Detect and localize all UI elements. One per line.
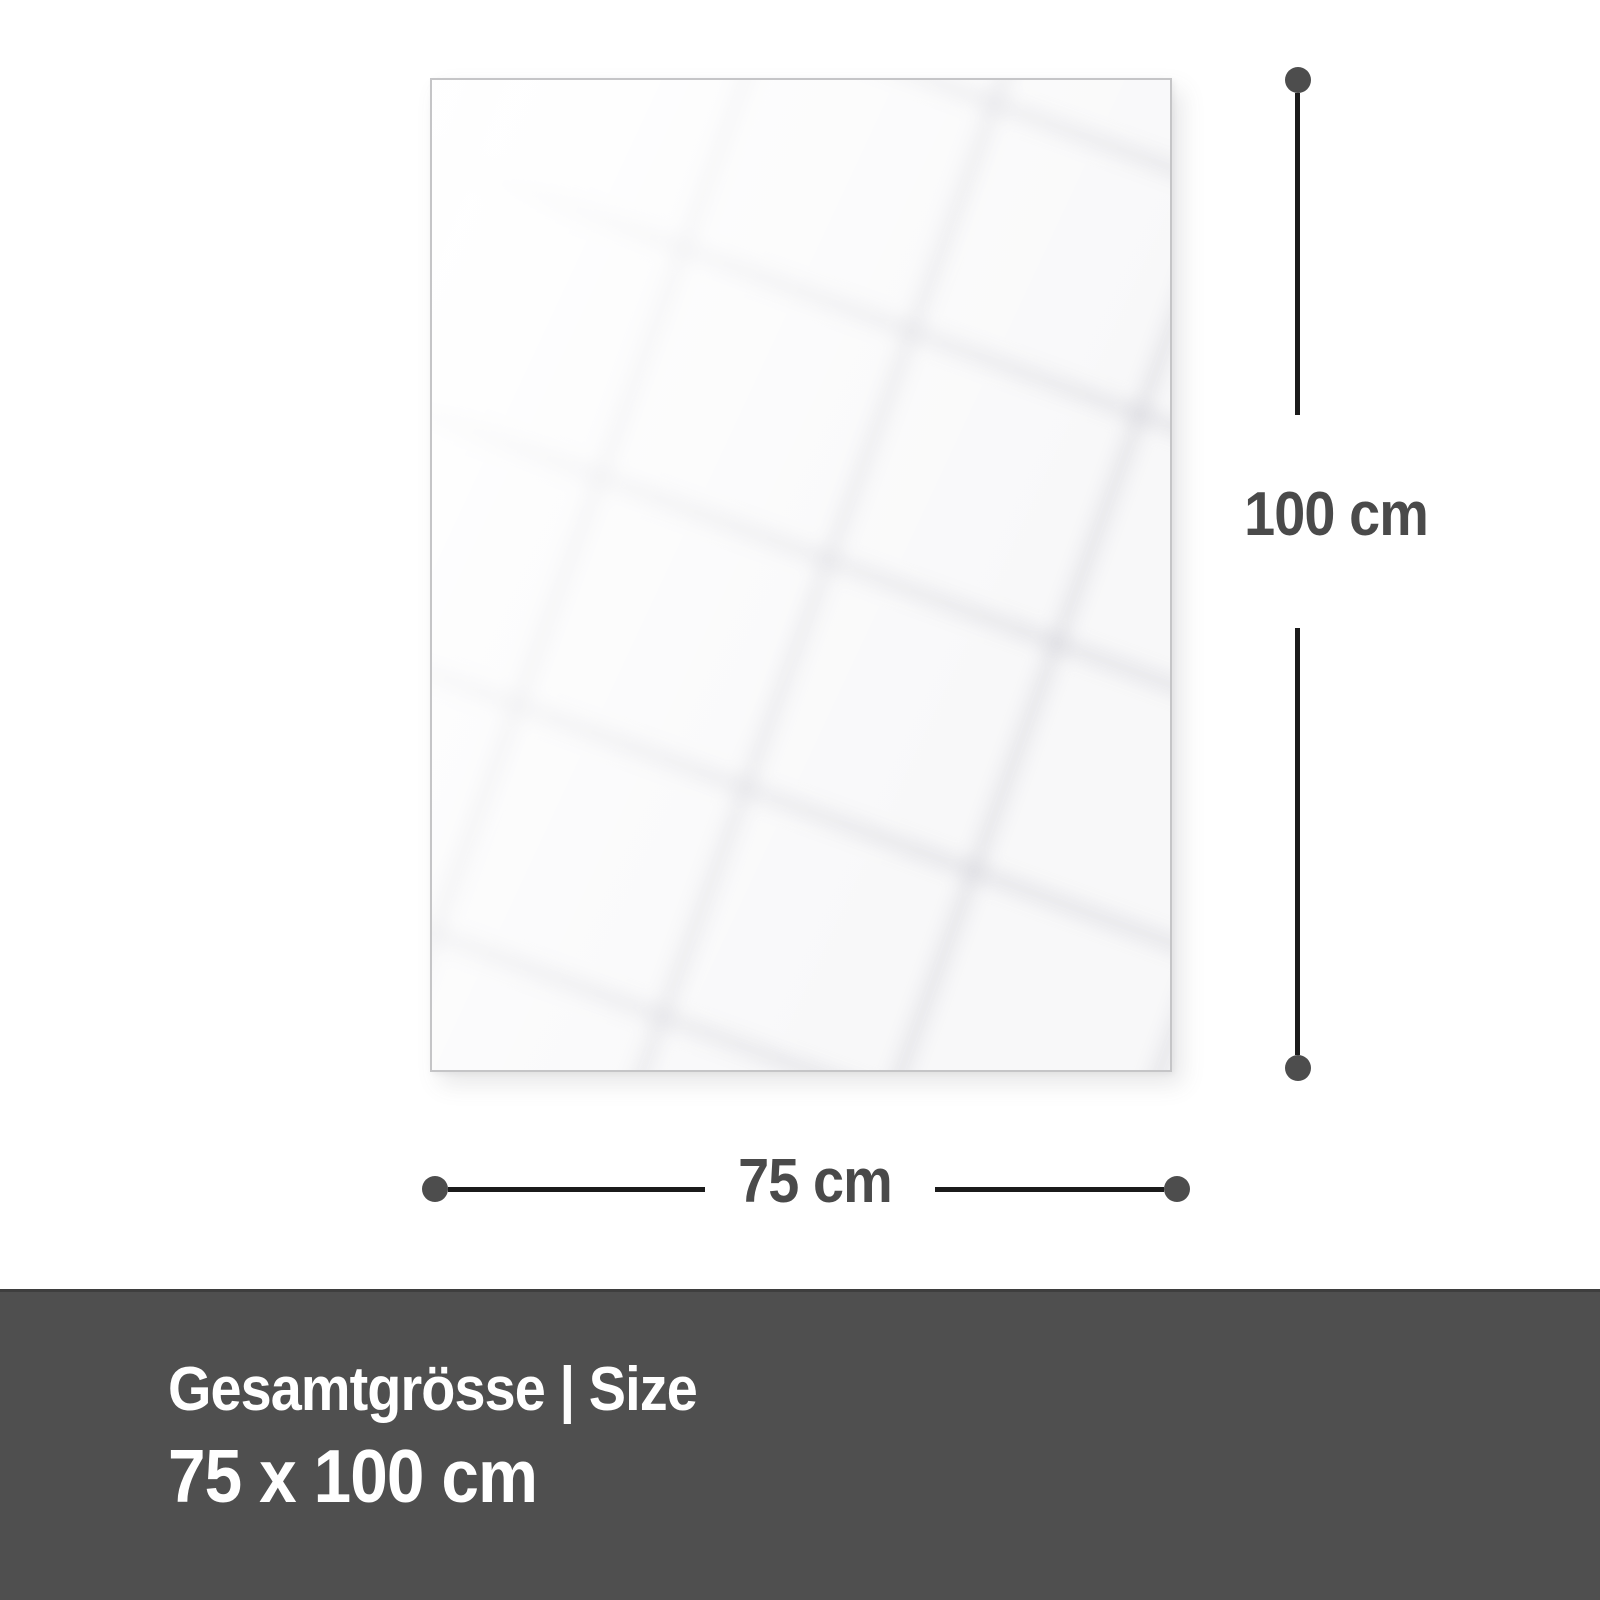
height-dimension-line-upper <box>1295 93 1300 415</box>
dimension-endpoint-dot <box>1285 67 1311 93</box>
glass-panel <box>430 78 1172 1072</box>
dimension-endpoint-dot <box>422 1176 448 1202</box>
product-size-diagram: 100 cm 75 cm Gesamtgrösse | Size 75 x 10… <box>0 0 1600 1600</box>
glass-gloss-highlight <box>432 80 1170 1070</box>
width-dimension-line-right <box>935 1187 1164 1192</box>
height-dimension-line-lower <box>1295 628 1300 1055</box>
size-caption: Gesamtgrösse | Size <box>168 1359 697 1421</box>
footer-band: Gesamtgrösse | Size 75 x 100 cm <box>0 1289 1600 1600</box>
size-value: 75 x 100 cm <box>168 1439 537 1514</box>
width-dimension-line-left <box>448 1187 705 1192</box>
height-label: 100 cm <box>1201 484 1471 546</box>
dimension-endpoint-dot <box>1164 1176 1190 1202</box>
dimension-endpoint-dot <box>1285 1055 1311 1081</box>
width-label: 75 cm <box>680 1151 950 1213</box>
